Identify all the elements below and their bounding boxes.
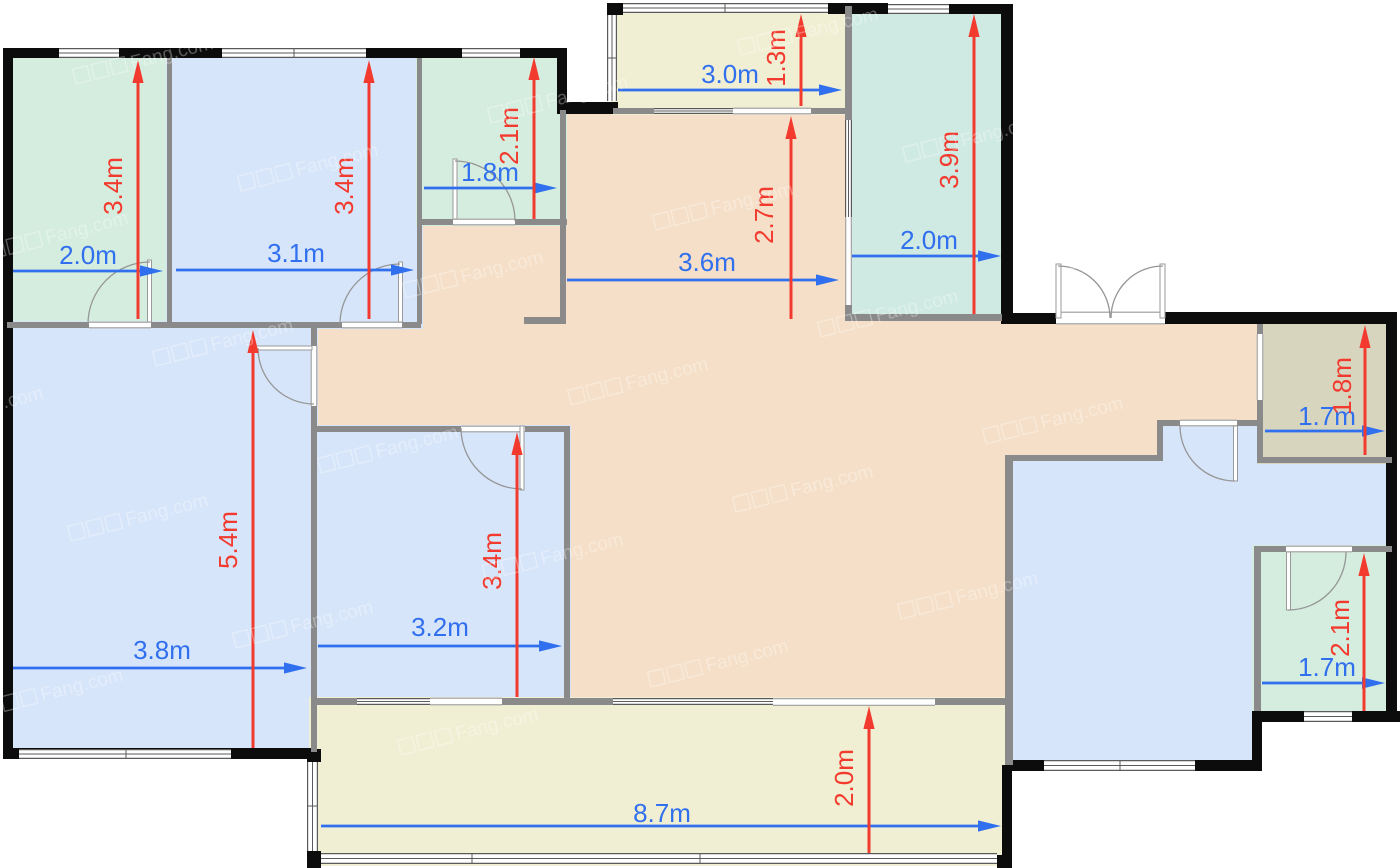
svg-text:3.8m: 3.8m bbox=[133, 635, 191, 665]
svg-text:3.1m: 3.1m bbox=[267, 238, 325, 268]
svg-text:8.7m: 8.7m bbox=[633, 798, 691, 828]
svg-text:1.8m: 1.8m bbox=[1327, 357, 1357, 415]
svg-text:3.2m: 3.2m bbox=[411, 612, 469, 642]
svg-text:2.1m: 2.1m bbox=[1325, 599, 1355, 657]
svg-text:5.4m: 5.4m bbox=[213, 511, 243, 569]
svg-text:3.0m: 3.0m bbox=[701, 59, 759, 89]
svg-text:3.6m: 3.6m bbox=[678, 247, 736, 277]
svg-text:3.4m: 3.4m bbox=[98, 157, 128, 215]
svg-text:2.0m: 2.0m bbox=[829, 749, 859, 807]
svg-text:2.0m: 2.0m bbox=[900, 225, 958, 255]
svg-text:2.0m: 2.0m bbox=[59, 240, 117, 270]
